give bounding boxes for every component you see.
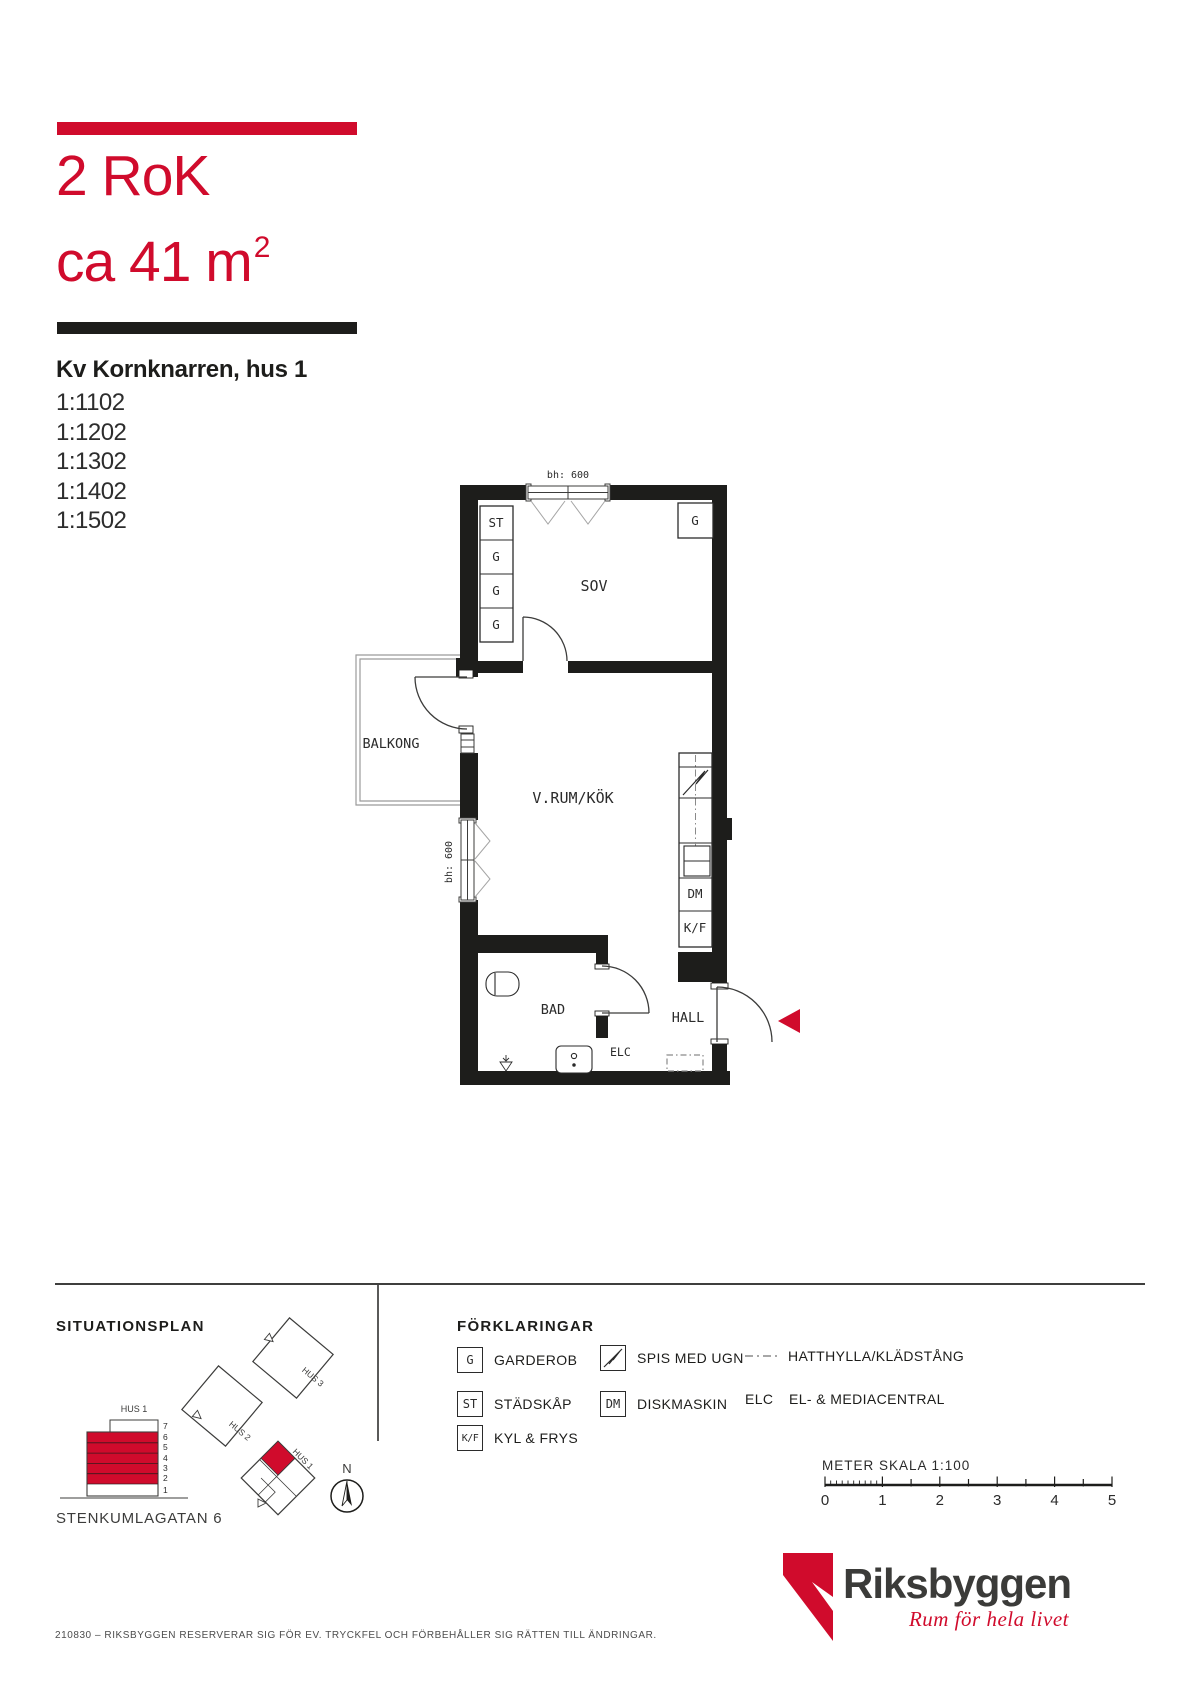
floor-drain-icon [500, 1055, 512, 1071]
label-elc: ELC [610, 1045, 631, 1059]
stove-legend-icon [600, 1345, 626, 1371]
legend-label: SPIS MED UGN [637, 1350, 744, 1366]
dashdot-legend-icon [745, 1351, 777, 1361]
siteplan: 7 6 5 4 3 2 1 HUS 1 HUS 2 HUS 3 [60, 1318, 363, 1515]
legend-item-garderob: G GARDEROB [457, 1347, 577, 1373]
legend-label: STÄDSKÅP [494, 1396, 572, 1412]
svg-text:4: 4 [163, 1453, 168, 1463]
column-divider [377, 1285, 379, 1441]
riksbyggen-tagline: Rum för hela livet [873, 1607, 1069, 1632]
door-bad [602, 966, 649, 1013]
legend-symbol-st: ST [457, 1391, 483, 1417]
door-entry [717, 987, 772, 1042]
hus1-elevation-label: HUS 1 [121, 1404, 148, 1414]
scalebar: METER SKALA 1:100 [821, 1458, 1116, 1509]
label-g: G [492, 583, 500, 598]
legend-item-stadskap: ST STÄDSKÅP [457, 1391, 572, 1417]
floor-numbers: 7 6 5 4 3 2 1 [163, 1421, 168, 1495]
svg-text:5: 5 [163, 1442, 168, 1452]
section-divider [55, 1283, 1145, 1285]
legend-label: GARDEROB [494, 1352, 577, 1368]
label-bh-left: bh: 600 [444, 841, 455, 883]
legend-symbol-elc: ELC [745, 1391, 778, 1407]
label-bh-top: bh: 600 [547, 470, 589, 481]
label-g: G [492, 617, 500, 632]
label-hall: HALL [672, 1010, 705, 1026]
legend-symbol-g: G [457, 1347, 483, 1373]
riksbyggen-wordmark: Riksbyggen [843, 1560, 1071, 1608]
scalebar-ticks: 0 1 2 3 4 5 [821, 1492, 1116, 1509]
footer-disclaimer: 210830 – RIKSBYGGEN RESERVERAR SIG FÖR E… [55, 1630, 657, 1641]
svg-text:1: 1 [163, 1485, 168, 1495]
label-bad: BAD [541, 1002, 565, 1018]
legend-label: HATTHYLLA/KLÄDSTÅNG [788, 1348, 964, 1364]
plan-labels: bh: 600 bh: 600 ST G G G G SOV V.RUM/KÖK… [363, 470, 707, 1059]
svg-text:5: 5 [1108, 1492, 1116, 1509]
scalebar-title: METER SKALA 1:100 [822, 1458, 970, 1473]
riksbyggen-logo-icon [783, 1553, 833, 1641]
entrance-arrow [778, 1009, 800, 1033]
door-balcony [415, 677, 467, 729]
label-sov: SOV [580, 577, 607, 595]
label-g-right: G [691, 513, 699, 528]
legend-symbol-dm: DM [600, 1391, 626, 1417]
svg-text:4: 4 [1050, 1492, 1058, 1509]
label-g: G [492, 549, 500, 564]
label-kf: K/F [684, 920, 707, 935]
legend-symbol-kf: K/F [457, 1425, 483, 1451]
label-vrum: V.RUM/KÖK [532, 788, 613, 807]
street-address: STENKUMLAGATAN 6 [56, 1510, 222, 1527]
svg-text:3: 3 [163, 1463, 168, 1473]
svg-text:2: 2 [163, 1473, 168, 1483]
legend-label: KYL & FRYS [494, 1430, 578, 1446]
page: 2 RoK ca 41 m2 Kv Kornknarren, hus 1 1:1… [0, 0, 1200, 1696]
svg-text:0: 0 [821, 1492, 829, 1509]
legend-item-diskmaskin: DM DISKMASKIN [600, 1391, 727, 1417]
legend-item-elc: ELC EL- & MEDIACENTRAL [745, 1391, 945, 1407]
svg-text:7: 7 [163, 1421, 168, 1431]
svg-text:2: 2 [936, 1492, 944, 1509]
label-st: ST [488, 515, 504, 530]
legend-label: DISKMASKIN [637, 1396, 727, 1412]
svg-text:1: 1 [878, 1492, 886, 1509]
north-label: N [342, 1461, 351, 1476]
north-compass: N [331, 1461, 363, 1512]
svg-text:3: 3 [993, 1492, 1001, 1509]
toilet-icon [486, 972, 519, 996]
legend-label: EL- & MEDIACENTRAL [789, 1391, 945, 1407]
door-sov [523, 617, 567, 661]
hus3-entry-mark [264, 1333, 275, 1344]
sink-icon [556, 1046, 592, 1073]
situationsplan-heading: SITUATIONSPLAN [56, 1318, 205, 1335]
legend-item-spis: SPIS MED UGN [600, 1345, 744, 1371]
label-dm: DM [687, 886, 702, 901]
hatshelf-icon [667, 1055, 703, 1071]
legend-item-hatthylla: HATTHYLLA/KLÄDSTÅNG [745, 1348, 964, 1364]
svg-text:6: 6 [163, 1432, 168, 1442]
label-balkong: BALKONG [363, 736, 420, 752]
legend-item-kylfrys: K/F KYL & FRYS [457, 1425, 578, 1451]
forklaringar-heading: FÖRKLARINGAR [457, 1318, 594, 1335]
floorplan-svg: bh: 600 bh: 600 ST G G G G SOV V.RUM/KÖK… [0, 0, 1200, 1696]
